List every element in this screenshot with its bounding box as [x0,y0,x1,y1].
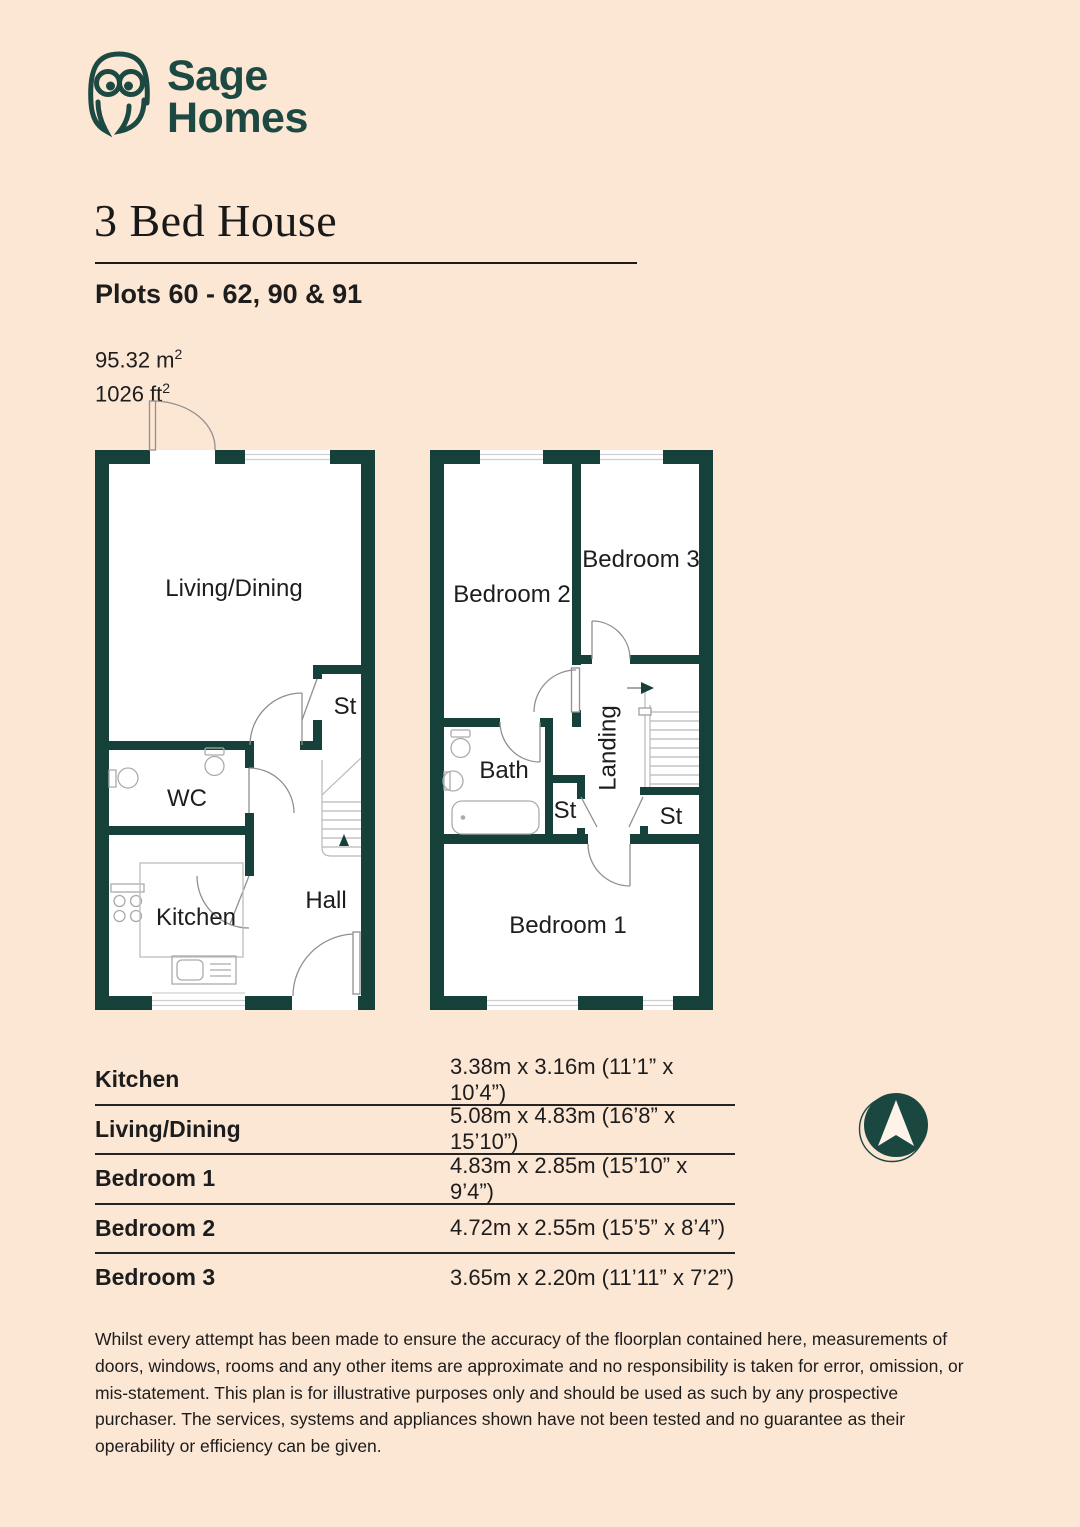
table-room-name: Kitchen [95,1066,179,1093]
landing-label: Landing [595,705,622,790]
entrance-door [150,401,216,450]
brand-word-sage: Sage [167,55,308,97]
bath-label: Bath [479,757,528,784]
bedroom-3-label: Bedroom 3 [582,546,699,573]
ground-floor-plan: Living/Dining St WC Kitchen Hall [80,390,390,1020]
floorplan-page: { "colors": { "background": "#fce6d4", "… [0,0,1080,1527]
table-room-size: 4.72m x 2.55m (15’5” x 8’4”) [450,1215,725,1241]
page-title: 3 Bed House [94,194,337,247]
living-dining-label: Living/Dining [165,575,302,602]
table-room-name: Bedroom 2 [95,1215,215,1242]
owl-eyes [97,72,143,95]
table-room-size: 5.08m x 4.83m (16’8” x 15’10”) [450,1103,735,1155]
brand-word-homes: Homes [167,97,308,139]
table-room-size: 4.83m x 2.85m (15’10” x 9’4”) [450,1153,735,1205]
table-room-name: Bedroom 3 [95,1264,215,1291]
sage-homes-owl-logo-icon [86,48,156,140]
table-room-name: Living/Dining [95,1116,241,1143]
table-room-name: Bedroom 1 [95,1165,215,1192]
bedroom-2-label: Bedroom 2 [453,581,570,608]
dimensions-table: Kitchen 3.38m x 3.16m (11’1” x 10’4”) Li… [95,1056,735,1302]
first-floor-plan: Bedroom 2 Bedroom 3 Bath Landing St St B… [420,390,720,1020]
title-divider [95,262,637,264]
hall-label: Hall [305,887,346,914]
north-arrow-icon [853,1086,937,1170]
table-row: Bedroom 3 3.65m x 2.20m (11’11” x 7’2”) [95,1254,735,1302]
plots-subtitle: Plots 60 - 62, 90 & 91 [95,279,362,310]
area-metric: 95.32 m2 [95,340,182,374]
bedroom-1-label: Bedroom 1 [509,912,626,939]
wc-label: WC [167,785,207,812]
kitchen-label: Kitchen [156,904,236,931]
table-row: Bedroom 2 4.72m x 2.55m (15’5” x 8’4”) [95,1205,735,1255]
table-room-size: 3.65m x 2.20m (11’11” x 7’2”) [450,1265,734,1291]
disclaimer-text: Whilst every attempt has been made to en… [95,1326,969,1460]
table-row: Bedroom 1 4.83m x 2.85m (15’10” x 9’4”) [95,1155,735,1205]
table-room-size: 3.38m x 3.16m (11’1” x 10’4”) [450,1054,735,1106]
table-row: Living/Dining 5.08m x 4.83m (16’8” x 15’… [95,1106,735,1156]
ff-storage-1-label: St [554,797,577,824]
table-row: Kitchen 3.38m x 3.16m (11’1” x 10’4”) [95,1056,735,1106]
ff-storage-2-label: St [660,803,683,830]
gf-storage-label: St [334,693,357,720]
brand-wordmark: Sage Homes [167,55,308,139]
